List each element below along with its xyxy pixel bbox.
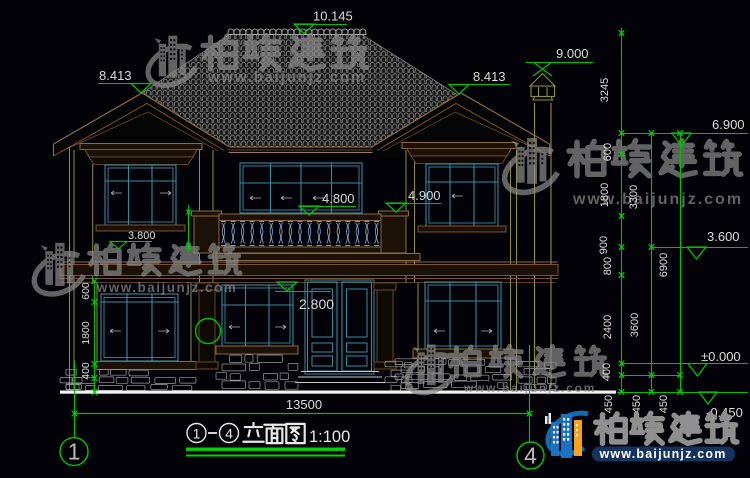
svg-text:www.baijunjz.com: www.baijunjz.com [207, 69, 366, 86]
svg-text:900: 900 [598, 236, 610, 254]
svg-text:400: 400 [80, 362, 92, 380]
svg-text:3.600: 3.600 [707, 229, 740, 244]
svg-text:450: 450 [603, 395, 615, 413]
svg-text:±0.000: ±0.000 [701, 349, 741, 364]
svg-text:4: 4 [225, 426, 233, 442]
svg-text:1: 1 [68, 439, 81, 465]
svg-text:450: 450 [631, 395, 643, 413]
svg-text:8.413: 8.413 [473, 69, 506, 84]
svg-text:800: 800 [602, 257, 614, 275]
svg-text:www.baijunjz.com: www.baijunjz.com [96, 280, 238, 295]
svg-text:6900: 6900 [658, 253, 670, 277]
svg-text:www.baijunjz.com: www.baijunjz.com [598, 447, 726, 461]
svg-text:600: 600 [80, 282, 92, 300]
svg-text:3600: 3600 [629, 313, 641, 337]
svg-text:600: 600 [602, 143, 614, 161]
svg-text:1800: 1800 [599, 183, 611, 207]
svg-text:4.800: 4.800 [322, 191, 355, 206]
svg-text:400: 400 [601, 363, 613, 381]
svg-text:1: 1 [193, 426, 201, 442]
svg-text:1:100: 1:100 [309, 428, 350, 446]
svg-text:9.000: 9.000 [556, 46, 589, 61]
svg-text:2400: 2400 [602, 315, 614, 339]
svg-text:3245: 3245 [599, 78, 611, 102]
svg-text:450: 450 [658, 395, 670, 413]
svg-text:4.900: 4.900 [408, 188, 441, 203]
svg-text:4: 4 [524, 443, 537, 469]
svg-text:10.145: 10.145 [313, 9, 353, 24]
svg-text:2.800: 2.800 [299, 296, 334, 312]
svg-text:www.baijunjz.com: www.baijunjz.com [572, 191, 743, 208]
svg-text:3300: 3300 [628, 185, 640, 209]
svg-text:3.800: 3.800 [128, 230, 156, 242]
svg-text:6.900: 6.900 [712, 117, 745, 132]
svg-text:13500: 13500 [286, 397, 322, 412]
svg-text:8.413: 8.413 [99, 68, 132, 83]
svg-text:1800: 1800 [80, 321, 92, 345]
